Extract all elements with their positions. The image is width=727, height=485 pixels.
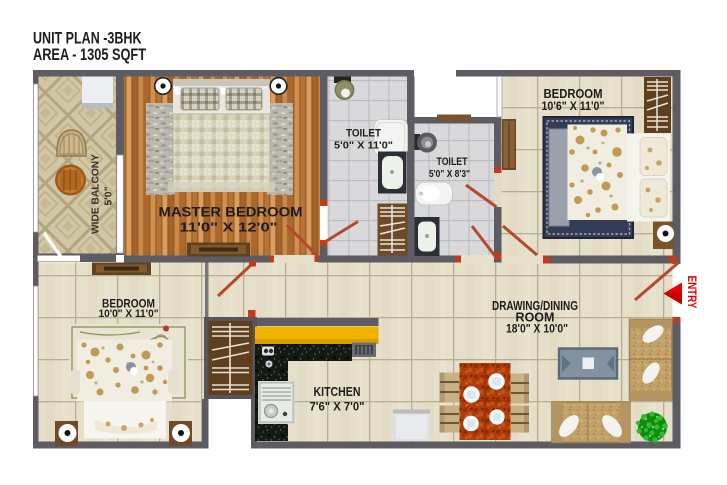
svg-text:7'6" X 7'0": 7'6" X 7'0" [310,400,365,414]
svg-text:5'0": 5'0" [103,186,115,205]
svg-text:11'0" X 12'0": 11'0" X 12'0" [180,221,278,235]
svg-text:ENTRY: ENTRY [685,276,697,309]
svg-text:10'6" X 11'0": 10'6" X 11'0" [542,101,605,113]
svg-text:AREA - 1305 SQFT: AREA - 1305 SQFT [33,45,146,64]
svg-text:18'0" X 10'0": 18'0" X 10'0" [506,322,568,336]
svg-text:5'0" X 11'0": 5'0" X 11'0" [334,140,393,152]
svg-text:WIDE BALCONY: WIDE BALCONY [90,154,102,234]
svg-text:TOILET: TOILET [346,128,381,140]
svg-text:5'0" X 8'3": 5'0" X 8'3" [429,168,470,180]
svg-text:BEDROOM: BEDROOM [544,87,603,101]
svg-text:KITCHEN: KITCHEN [314,385,361,399]
svg-text:MASTER BEDROOM: MASTER BEDROOM [159,205,303,220]
svg-text:10'0" X 11'0": 10'0" X 11'0" [99,308,159,320]
svg-text:TOILET: TOILET [437,156,468,168]
